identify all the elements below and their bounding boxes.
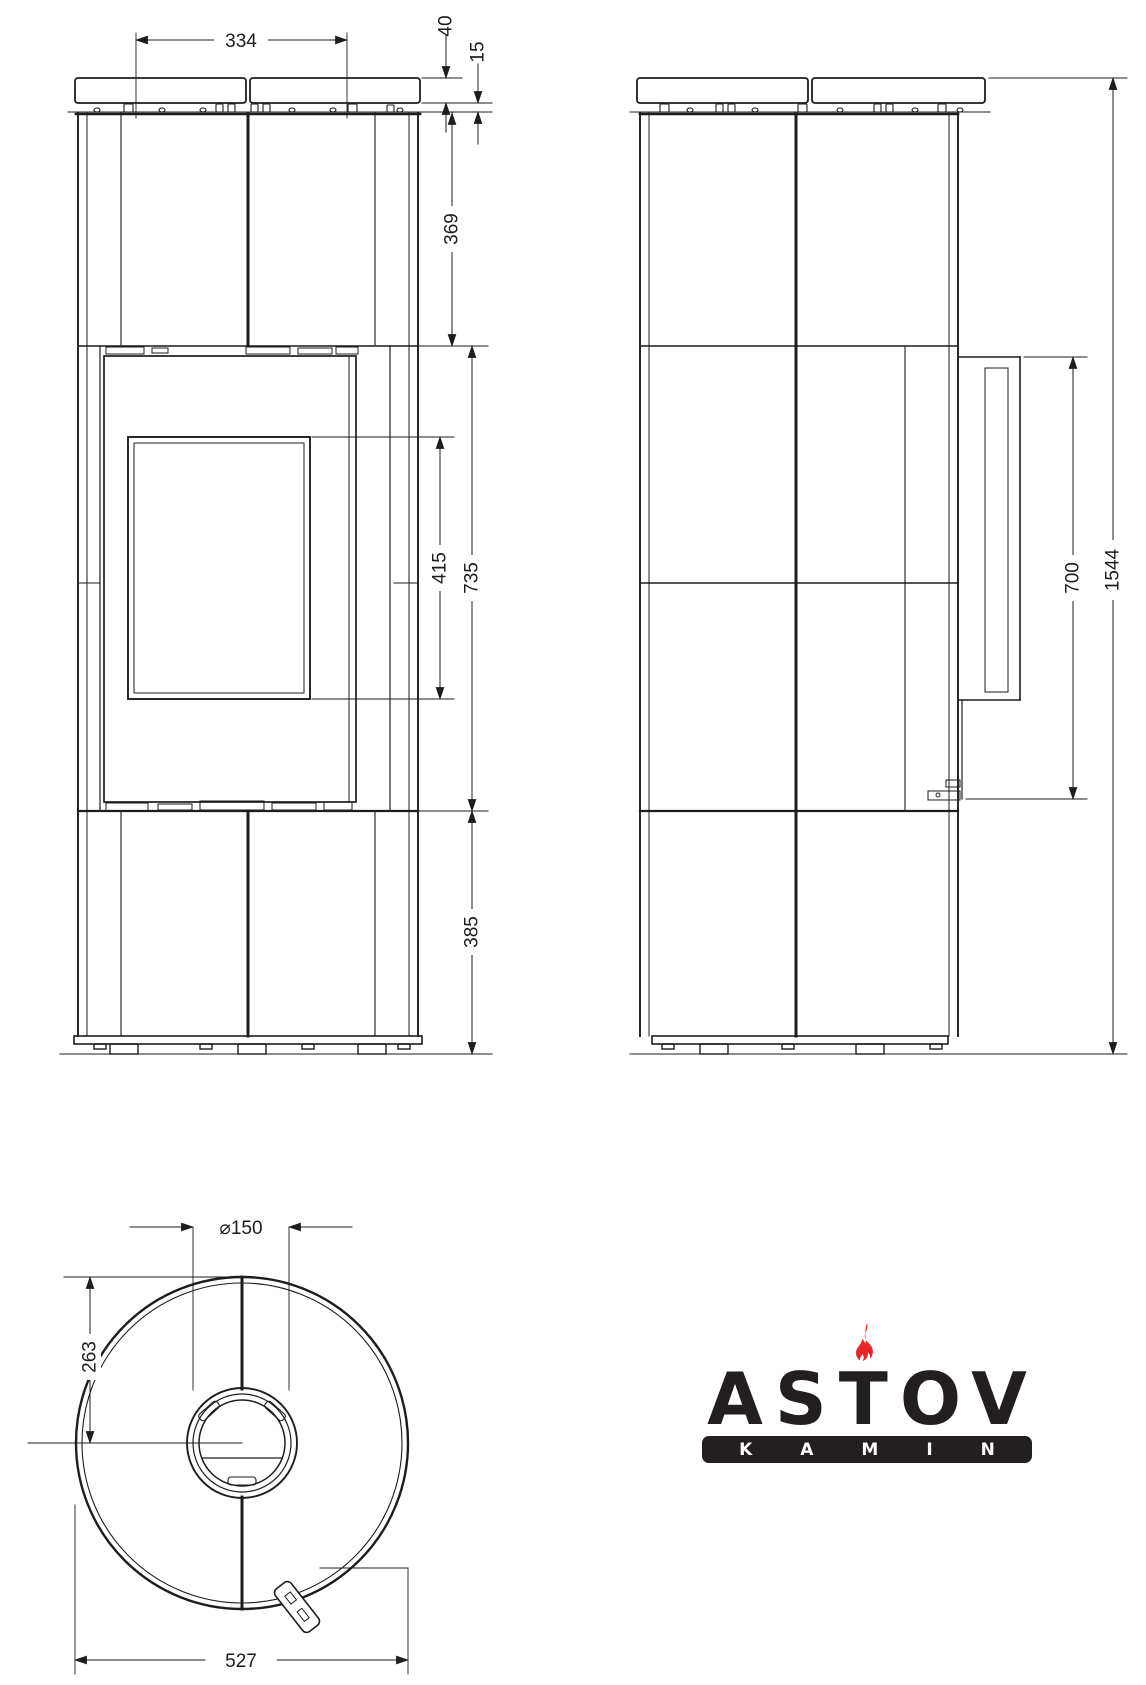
front-dimensions: 334 40 15 369 415 735 385 bbox=[136, 15, 492, 1054]
front-plate-studs bbox=[94, 104, 403, 112]
dim-body-diameter: 527 bbox=[225, 1651, 257, 1672]
side-door-profile bbox=[928, 357, 1020, 800]
side-feet bbox=[662, 1044, 942, 1054]
side-dimensions: 700 1544 bbox=[966, 78, 1127, 1054]
dim-top-plate-width: 334 bbox=[225, 31, 257, 52]
front-door-glass-outer bbox=[128, 437, 310, 699]
front-door bbox=[100, 346, 390, 811]
dim-plate-thickness: 40 bbox=[436, 15, 457, 36]
brand-subtitle: KAMIN bbox=[739, 1440, 1043, 1460]
dim-back-to-flue-center: 263 bbox=[80, 1341, 101, 1373]
brand-logo: ASTOV KAMIN bbox=[672, 1322, 1062, 1482]
front-view bbox=[60, 78, 492, 1054]
front-door-glass-inner bbox=[134, 443, 304, 693]
side-view bbox=[630, 78, 1127, 1054]
dim-base-section-height: 385 bbox=[462, 916, 483, 948]
dim-plate-clearance: 15 bbox=[468, 41, 489, 62]
dim-flue-diameter: ⌀150 bbox=[219, 1218, 262, 1239]
side-door-hinge bbox=[928, 791, 960, 800]
top-view-handle bbox=[272, 1580, 321, 1635]
front-base bbox=[60, 1036, 492, 1054]
front-body bbox=[78, 113, 418, 1036]
brand-name: ASTOV bbox=[672, 1368, 1074, 1430]
side-plate-studs bbox=[660, 104, 963, 112]
stove-dimension-drawing: 334 40 15 369 415 735 385 bbox=[0, 0, 1146, 1685]
front-feet bbox=[94, 1044, 410, 1054]
front-hardware-top bbox=[106, 347, 358, 354]
dim-glass-height: 415 bbox=[430, 552, 451, 584]
top-view bbox=[28, 1277, 408, 1634]
dim-upper-body-height: 369 bbox=[442, 213, 463, 245]
dim-total-height: 1544 bbox=[1103, 548, 1124, 591]
top-view-dimensions: ⌀150 263 527 bbox=[64, 1218, 408, 1674]
side-top-plate-right bbox=[812, 78, 985, 103]
front-top-plate-left bbox=[75, 78, 246, 103]
side-base bbox=[630, 1036, 1127, 1054]
side-top-plate-left bbox=[637, 78, 808, 103]
front-top-plate-right bbox=[250, 78, 420, 103]
brand-subtitle-bar: KAMIN bbox=[702, 1436, 1032, 1463]
side-body bbox=[640, 113, 958, 1036]
dim-door-height: 700 bbox=[1063, 562, 1084, 594]
dim-door-section-height: 735 bbox=[462, 562, 483, 594]
